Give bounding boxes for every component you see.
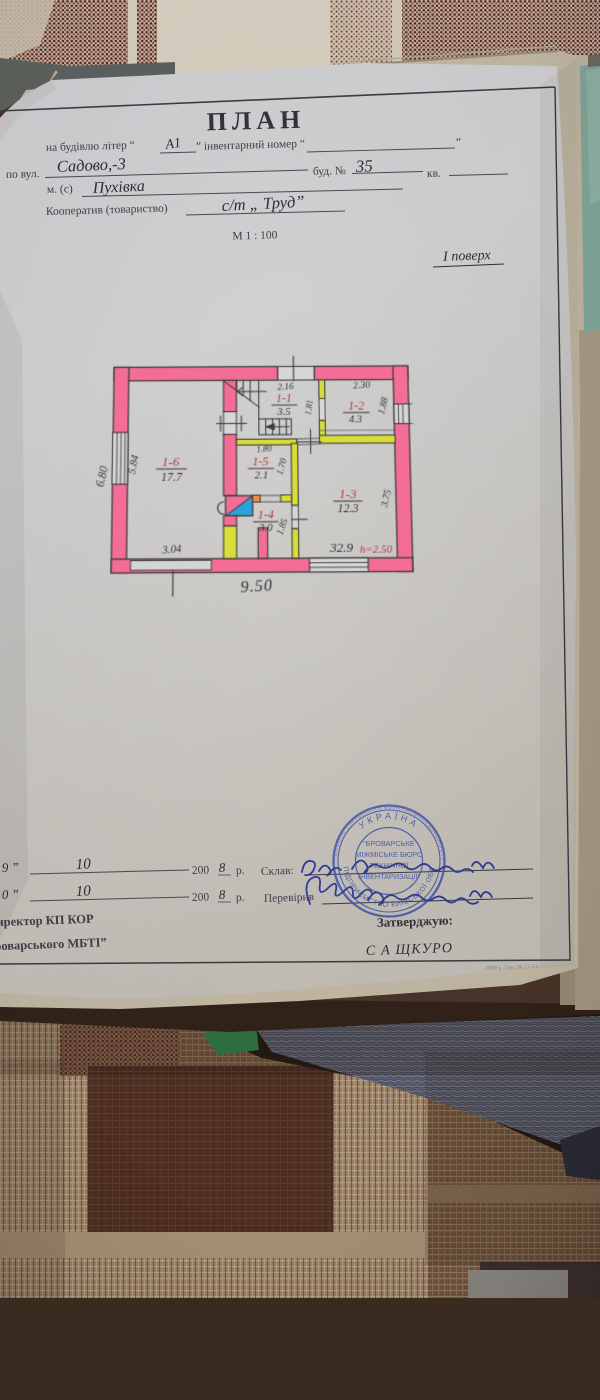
svg-text:4.3: 4.3 xyxy=(349,414,363,425)
svg-text:12.3: 12.3 xyxy=(337,502,359,516)
svg-text:h=2.50: h=2.50 xyxy=(360,544,393,556)
svg-text:2.16: 2.16 xyxy=(277,381,295,392)
svg-text:3.0: 3.0 xyxy=(258,522,274,534)
svg-text:5.84: 5.84 xyxy=(127,453,142,475)
svg-text:17.7: 17.7 xyxy=(161,471,183,485)
svg-text:32.9: 32.9 xyxy=(329,540,354,555)
svg-text:1.80: 1.80 xyxy=(256,443,273,454)
svg-text:1-1: 1-1 xyxy=(276,392,292,405)
svg-text:1-4: 1-4 xyxy=(258,508,274,522)
svg-text:2.30: 2.30 xyxy=(353,379,371,391)
svg-text:3.75: 3.75 xyxy=(379,488,395,509)
svg-text:9.50: 9.50 xyxy=(240,577,273,597)
svg-text:1-5: 1-5 xyxy=(252,455,268,468)
svg-text:3.04: 3.04 xyxy=(161,544,183,557)
svg-text:1.88: 1.88 xyxy=(376,396,391,416)
svg-text:1-3: 1-3 xyxy=(339,487,357,502)
svg-text:2.1: 2.1 xyxy=(255,470,269,481)
svg-text:1.85: 1.85 xyxy=(274,517,290,537)
svg-text:1-2: 1-2 xyxy=(348,399,364,412)
svg-text:6.80: 6.80 xyxy=(93,465,111,488)
svg-text:1-6: 1-6 xyxy=(162,455,180,470)
svg-text:3.5: 3.5 xyxy=(276,407,291,418)
svg-text:1.81: 1.81 xyxy=(302,399,315,416)
svg-text:1.70: 1.70 xyxy=(274,457,288,476)
